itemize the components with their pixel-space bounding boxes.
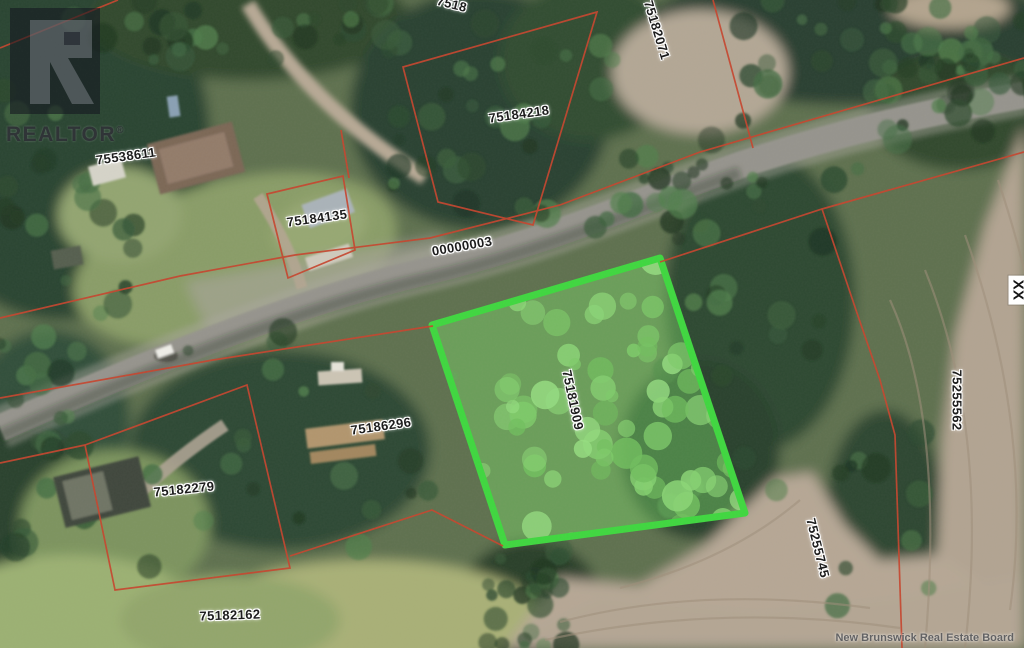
board-watermark: New Brunswick Real Estate Board: [835, 632, 1014, 644]
aerial-parcel-map: REALTOR® 7553861175184135751842187518207…: [0, 0, 1024, 648]
photo-grain: [0, 0, 1024, 648]
satellite-imagery: [0, 0, 1024, 648]
